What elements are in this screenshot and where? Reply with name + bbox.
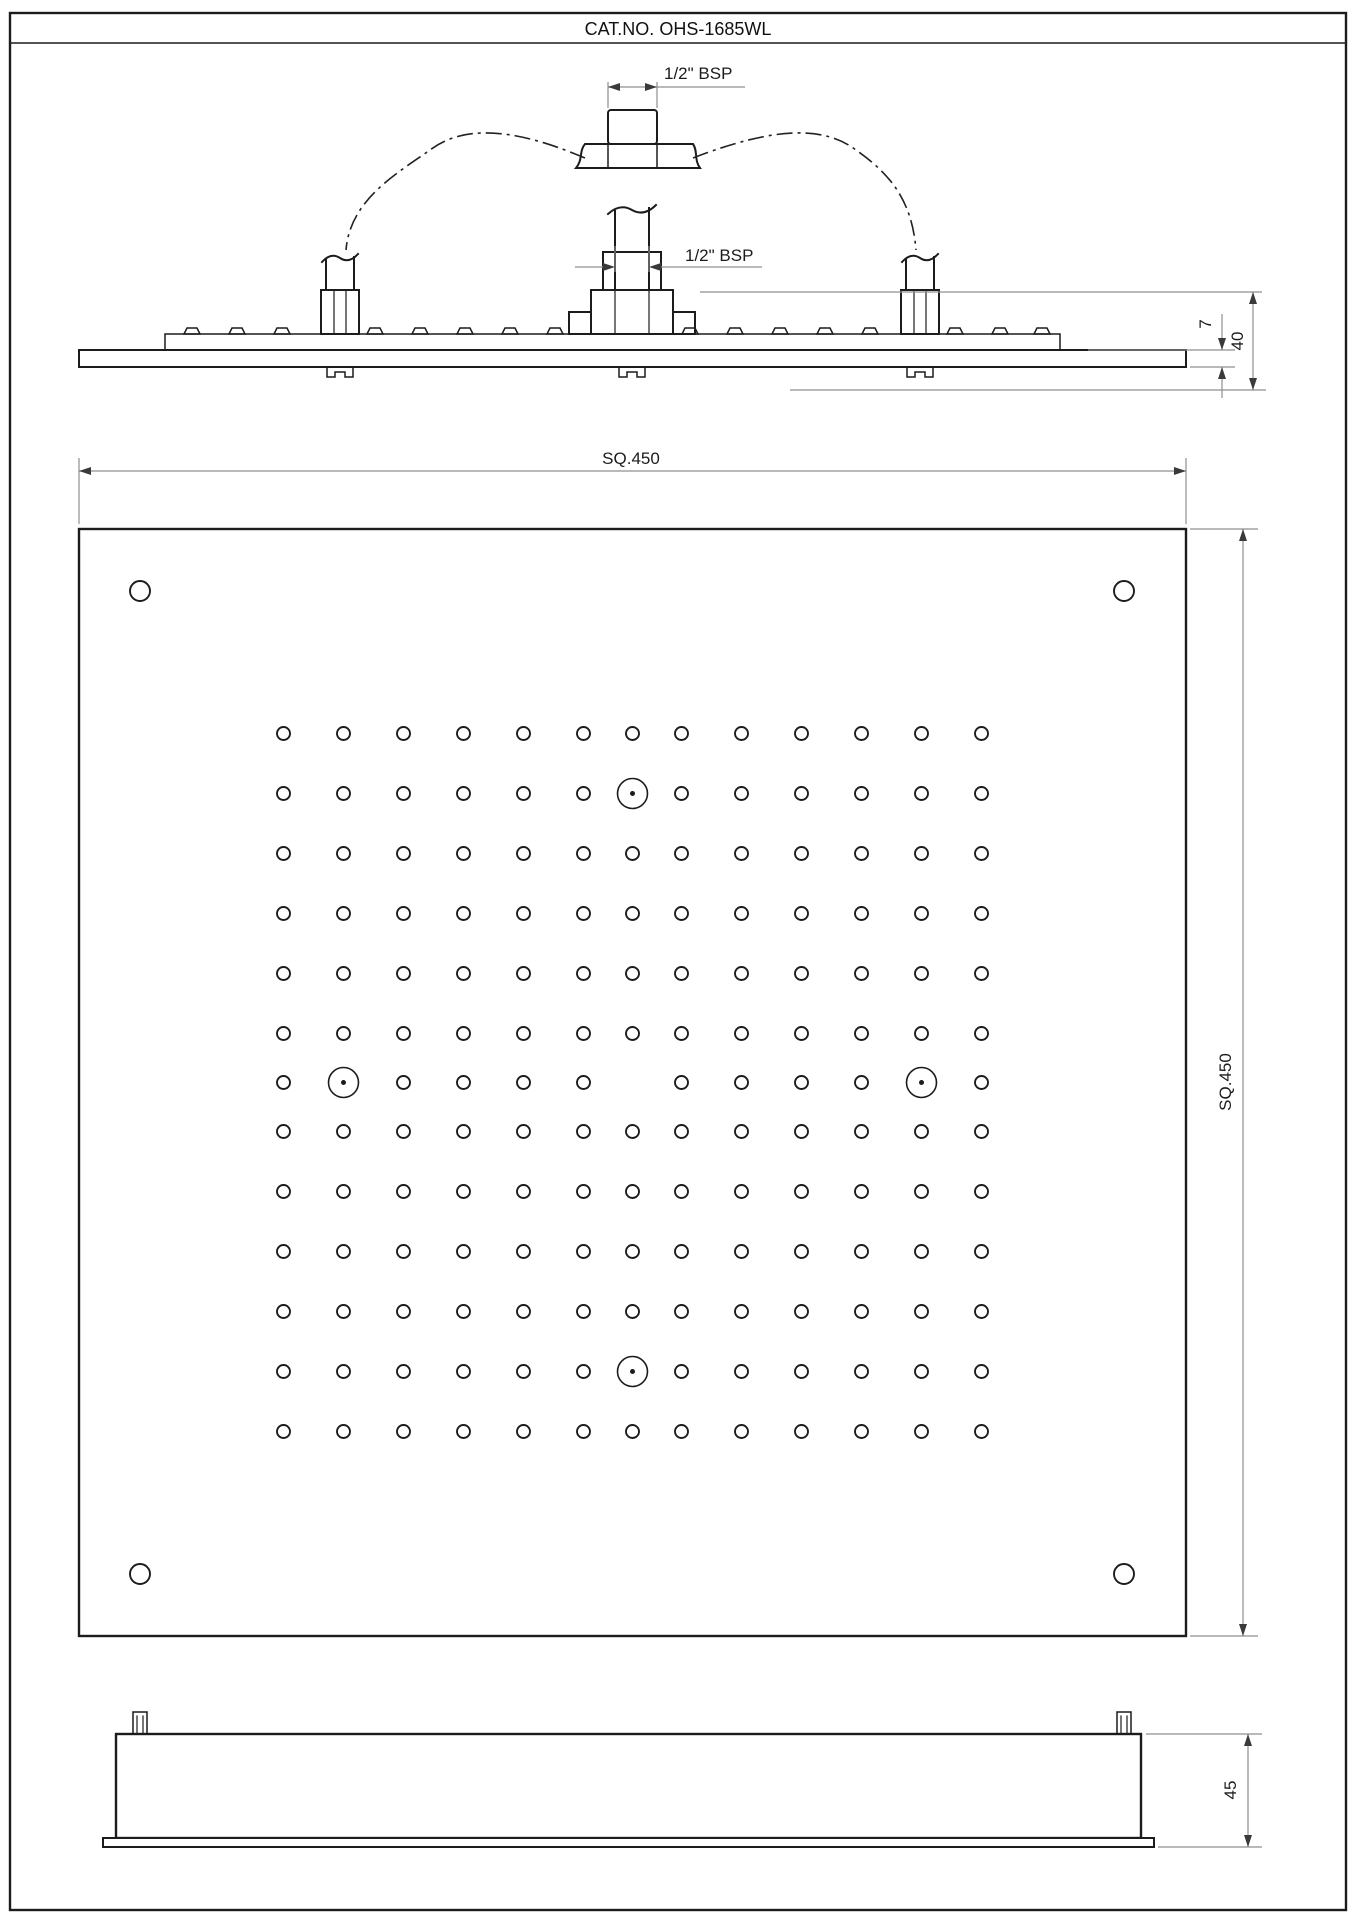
- drawing-title: CAT.NO. OHS-1685WL: [585, 19, 772, 39]
- nozzle-hole: [277, 1365, 290, 1378]
- dim-7-label: 7: [1196, 319, 1215, 328]
- nozzle-hole: [795, 1425, 808, 1438]
- mount-tab-left: [133, 1712, 147, 1734]
- nozzle-hole: [915, 1185, 928, 1198]
- nozzle-hole: [735, 847, 748, 860]
- nozzle-hole: [675, 1425, 688, 1438]
- nozzle-hole: [915, 847, 928, 860]
- nozzle-hole: [855, 1245, 868, 1258]
- nozzle-hole: [795, 1185, 808, 1198]
- nozzle-hole: [626, 1305, 639, 1318]
- nozzle-hole: [457, 847, 470, 860]
- nozzle-hole: [397, 967, 410, 980]
- nozzle-hole: [795, 1125, 808, 1138]
- nozzle-hole: [337, 1245, 350, 1258]
- inlet-port-center-dot: [919, 1080, 924, 1085]
- nozzle-hole: [855, 1305, 868, 1318]
- nozzle-hole: [975, 1245, 988, 1258]
- nozzle-hole: [855, 907, 868, 920]
- nozzle-hole: [795, 1076, 808, 1089]
- nozzle-hole: [735, 907, 748, 920]
- nozzle-hole: [975, 1027, 988, 1040]
- nozzle-hole: [855, 847, 868, 860]
- nozzle-hole: [577, 967, 590, 980]
- nozzle-hole: [915, 1027, 928, 1040]
- nozzle-hole: [457, 967, 470, 980]
- nozzle-hole: [397, 1076, 410, 1089]
- nozzle-hole: [337, 727, 350, 740]
- nozzle-hole: [915, 1425, 928, 1438]
- nozzle-hole: [457, 1076, 470, 1089]
- nozzle-hole: [397, 847, 410, 860]
- corner-screw-hole: [1114, 581, 1134, 601]
- nozzle-hole: [517, 727, 530, 740]
- nozzle-hole: [337, 1365, 350, 1378]
- nozzle-hole: [277, 1125, 290, 1138]
- nozzle-hole: [577, 787, 590, 800]
- nozzle-hole: [855, 1125, 868, 1138]
- nozzle-hole: [277, 1305, 290, 1318]
- nozzle-hole: [277, 1185, 290, 1198]
- nozzle-hole: [795, 1365, 808, 1378]
- nozzle-hole: [277, 1245, 290, 1258]
- nozzle-hole: [517, 1185, 530, 1198]
- housing-outline: [116, 1734, 1141, 1838]
- nozzle-hole: [277, 727, 290, 740]
- nozzle-hole: [517, 847, 530, 860]
- dim-40-label: 40: [1228, 332, 1247, 351]
- nozzle-hole: [337, 967, 350, 980]
- nozzle-hole: [337, 1027, 350, 1040]
- nozzle-hole: [915, 787, 928, 800]
- nozzle-hole: [277, 847, 290, 860]
- nozzle-hole: [577, 1125, 590, 1138]
- nozzle-hole: [975, 1076, 988, 1089]
- nozzle-hole: [735, 787, 748, 800]
- nozzle-hole: [577, 1076, 590, 1089]
- nozzle-hole: [457, 907, 470, 920]
- nozzle-hole: [675, 847, 688, 860]
- nozzle-hole: [975, 847, 988, 860]
- nozzle-hole: [457, 1245, 470, 1258]
- nozzle-hole: [626, 1425, 639, 1438]
- nozzle-hole: [457, 1425, 470, 1438]
- nozzle-hole: [675, 907, 688, 920]
- nozzle-hole: [517, 967, 530, 980]
- nozzle-hole: [855, 727, 868, 740]
- nozzle-hole: [675, 1245, 688, 1258]
- inlet-fitting-body: [608, 110, 657, 144]
- nozzle-hole: [675, 1076, 688, 1089]
- nozzle-hole: [457, 727, 470, 740]
- nozzle-hole: [626, 1027, 639, 1040]
- nozzle-hole: [975, 1125, 988, 1138]
- bsp-mid-label: 1/2" BSP: [685, 246, 753, 265]
- nozzle-hole: [577, 1245, 590, 1258]
- nozzle-hole: [795, 907, 808, 920]
- bsp-top-label: 1/2" BSP: [664, 64, 732, 83]
- inlet-fitting-flange: [576, 144, 700, 168]
- nozzle-hole: [277, 1425, 290, 1438]
- nozzle-hole: [457, 787, 470, 800]
- nozzle-hole: [855, 1425, 868, 1438]
- nozzle-hole: [675, 727, 688, 740]
- nozzle-hole: [795, 847, 808, 860]
- nozzle-hole: [626, 967, 639, 980]
- nozzle-hole: [975, 787, 988, 800]
- nozzle-hole: [397, 1365, 410, 1378]
- nozzle-hole: [397, 1305, 410, 1318]
- nozzle-hole: [975, 967, 988, 980]
- nozzle-hole: [337, 847, 350, 860]
- nozzle-hole: [675, 1027, 688, 1040]
- nozzle-hole: [577, 1365, 590, 1378]
- nozzle-hole: [517, 1076, 530, 1089]
- nozzle-hole: [855, 1076, 868, 1089]
- nozzle-hole: [337, 907, 350, 920]
- nozzle-hole: [337, 1185, 350, 1198]
- face-plate-edge: [79, 350, 1186, 367]
- nozzle-hole: [337, 1305, 350, 1318]
- nozzle-hole: [855, 967, 868, 980]
- nozzle-hole: [517, 907, 530, 920]
- nozzle-hole: [915, 1305, 928, 1318]
- nozzle-hole: [735, 1425, 748, 1438]
- nozzle-hole: [735, 1305, 748, 1318]
- nozzle-hole: [915, 1245, 928, 1258]
- nozzle-hole: [735, 1185, 748, 1198]
- nozzle-hole: [517, 1027, 530, 1040]
- corner-screw-hole: [1114, 1564, 1134, 1584]
- nozzle-hole: [577, 1185, 590, 1198]
- nozzle-hole: [397, 1027, 410, 1040]
- nozzle-hole: [735, 1125, 748, 1138]
- nozzle-hole: [675, 787, 688, 800]
- nozzle-hole: [337, 787, 350, 800]
- face-plate-lip: [103, 1838, 1154, 1847]
- nozzle-hole: [735, 727, 748, 740]
- nozzle-hole: [397, 787, 410, 800]
- nozzle-hole: [915, 967, 928, 980]
- nozzle-hole: [915, 907, 928, 920]
- nozzle-hole: [915, 1125, 928, 1138]
- nozzle-hole: [517, 787, 530, 800]
- nozzle-hole: [735, 1027, 748, 1040]
- face-plate-outline: [79, 529, 1186, 1636]
- nozzle-hole: [517, 1365, 530, 1378]
- nozzle-hole: [915, 1365, 928, 1378]
- nozzle-hole: [975, 907, 988, 920]
- nozzle-hole: [675, 1125, 688, 1138]
- nozzle-hole: [457, 1365, 470, 1378]
- nozzle-hole: [855, 1365, 868, 1378]
- nozzle-hole: [397, 1125, 410, 1138]
- nozzle-hole: [577, 727, 590, 740]
- nozzle-hole: [577, 1305, 590, 1318]
- nozzle-hole: [975, 1185, 988, 1198]
- corner-screw-hole: [130, 581, 150, 601]
- dim-height-label: SQ.450: [1216, 1053, 1235, 1111]
- nozzle-hole: [577, 1027, 590, 1040]
- nozzle-hole: [517, 1425, 530, 1438]
- nozzle-hole: [735, 967, 748, 980]
- nozzle-hole: [397, 1425, 410, 1438]
- nozzle-hole: [397, 727, 410, 740]
- nozzle-hole: [457, 1125, 470, 1138]
- nozzle-hole: [855, 1185, 868, 1198]
- nozzle-hole: [975, 727, 988, 740]
- nozzle-hole: [517, 1125, 530, 1138]
- nozzle-hole: [675, 1365, 688, 1378]
- nozzle-hole: [915, 727, 928, 740]
- nozzle-hole: [795, 787, 808, 800]
- front-view: SQ.450 SQ.450: [79, 449, 1258, 1636]
- nozzle-hole: [277, 1076, 290, 1089]
- nozzle-hole: [795, 1245, 808, 1258]
- corner-screw-hole: [130, 1564, 150, 1584]
- nozzle-hole: [337, 1425, 350, 1438]
- nozzle-hole: [626, 1185, 639, 1198]
- dim-width-label: SQ.450: [602, 449, 660, 468]
- nozzle-hole: [735, 1365, 748, 1378]
- nozzle-hole: [577, 1425, 590, 1438]
- nozzle-hole: [626, 727, 639, 740]
- nozzle-hole: [626, 1245, 639, 1258]
- nozzle-hole: [855, 787, 868, 800]
- nozzle-hole: [277, 1027, 290, 1040]
- nozzle-hole: [397, 1245, 410, 1258]
- nozzle-hole: [795, 1027, 808, 1040]
- nozzle-hole: [277, 967, 290, 980]
- nozzle-hole: [975, 1305, 988, 1318]
- nozzle-hole: [457, 1027, 470, 1040]
- nozzle-hole: [795, 727, 808, 740]
- inlet-port-center-dot: [630, 791, 635, 796]
- nozzle-hole: [675, 967, 688, 980]
- nozzle-hole: [577, 907, 590, 920]
- nozzle-hole: [277, 787, 290, 800]
- nozzle-hole: [337, 1125, 350, 1138]
- nozzle-hole: [675, 1185, 688, 1198]
- nozzle-hole: [457, 1185, 470, 1198]
- nozzle-hole: [277, 907, 290, 920]
- nozzle-hole: [795, 1305, 808, 1318]
- nozzle-hole: [397, 907, 410, 920]
- nozzle-hole: [735, 1076, 748, 1089]
- nozzle-hole: [975, 1425, 988, 1438]
- nozzle-hole: [735, 1245, 748, 1258]
- nozzle-hole: [626, 907, 639, 920]
- nozzle-hole: [626, 1125, 639, 1138]
- inlet-port-center-dot: [630, 1369, 635, 1374]
- dim-45-label: 45: [1221, 1781, 1240, 1800]
- mount-tab-right: [1117, 1712, 1131, 1734]
- nozzle-hole: [577, 847, 590, 860]
- nozzle-hole: [397, 1185, 410, 1198]
- inlet-port-center-dot: [341, 1080, 346, 1085]
- nozzle-hole: [975, 1365, 988, 1378]
- nozzle-hole: [626, 847, 639, 860]
- nozzle-hole: [457, 1305, 470, 1318]
- nozzle-hole: [795, 967, 808, 980]
- drawing-sheet: CAT.NO. OHS-1685WL 1/2" BSP: [0, 0, 1356, 1920]
- nozzle-hole: [517, 1305, 530, 1318]
- nozzle-hole: [517, 1245, 530, 1258]
- nozzle-hole: [855, 1027, 868, 1040]
- nozzle-hole: [675, 1305, 688, 1318]
